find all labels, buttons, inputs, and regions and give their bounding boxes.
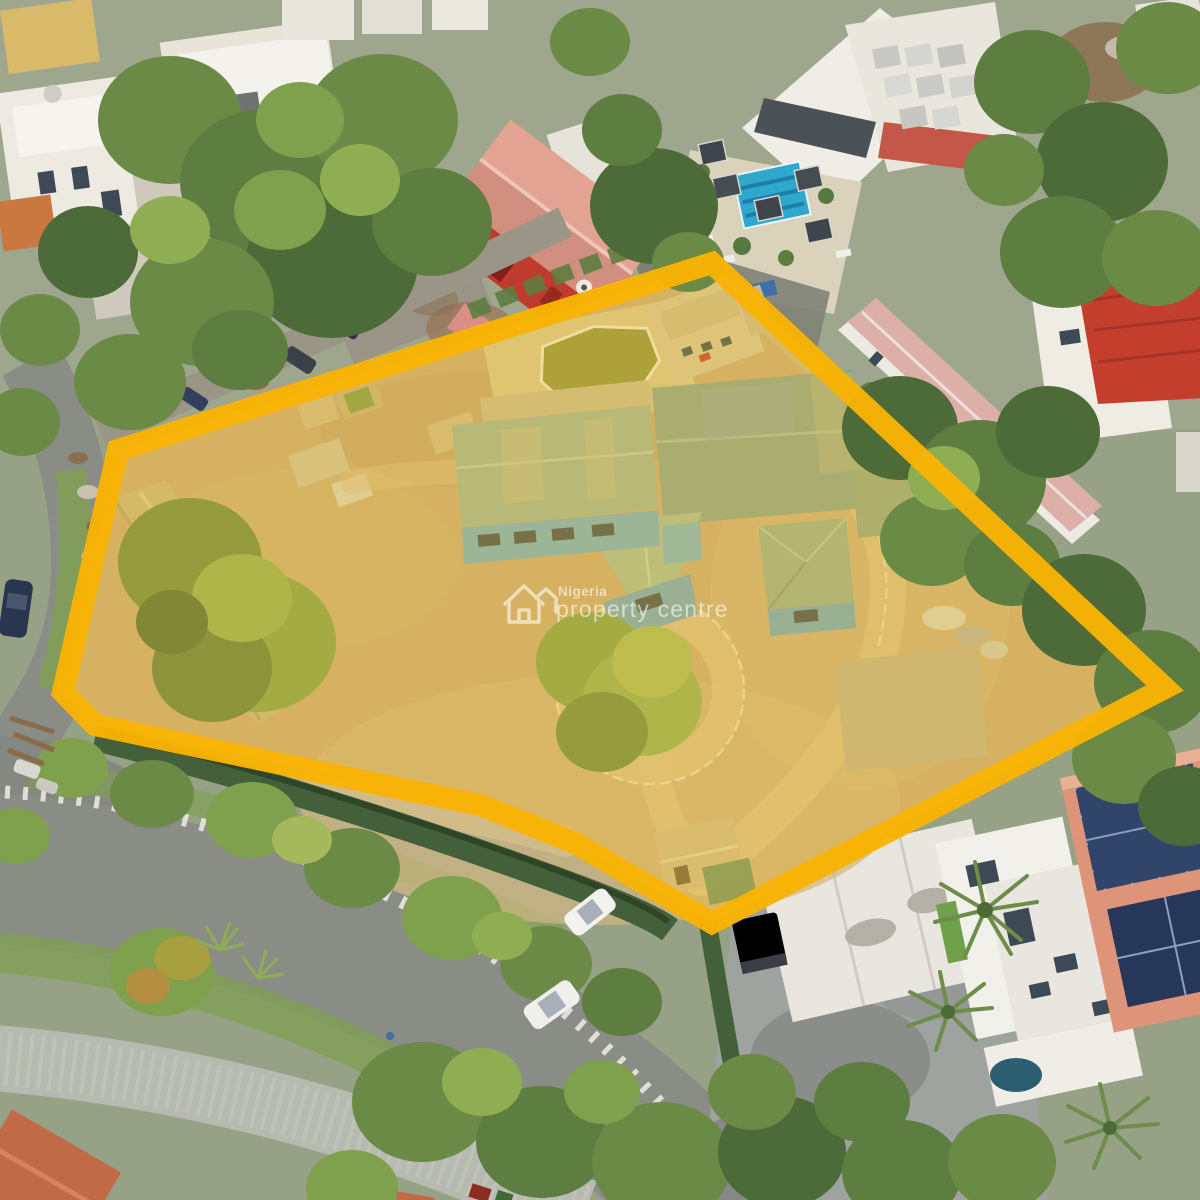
tan-flat-roof-house bbox=[0, 0, 100, 74]
villa-pool bbox=[990, 1058, 1042, 1092]
aerial-photo: Nigeria property centre bbox=[0, 0, 1200, 1200]
east-edge-building bbox=[1176, 432, 1200, 492]
pedestrian bbox=[386, 1032, 394, 1040]
scene-canvas: Nigeria property centre bbox=[0, 0, 1200, 1200]
top-edge-building-3 bbox=[432, 0, 488, 30]
top-edge-building-2 bbox=[362, 0, 422, 34]
top-edge-building-1 bbox=[282, 0, 354, 40]
watermark-brand-bottom: property centre bbox=[556, 596, 729, 622]
